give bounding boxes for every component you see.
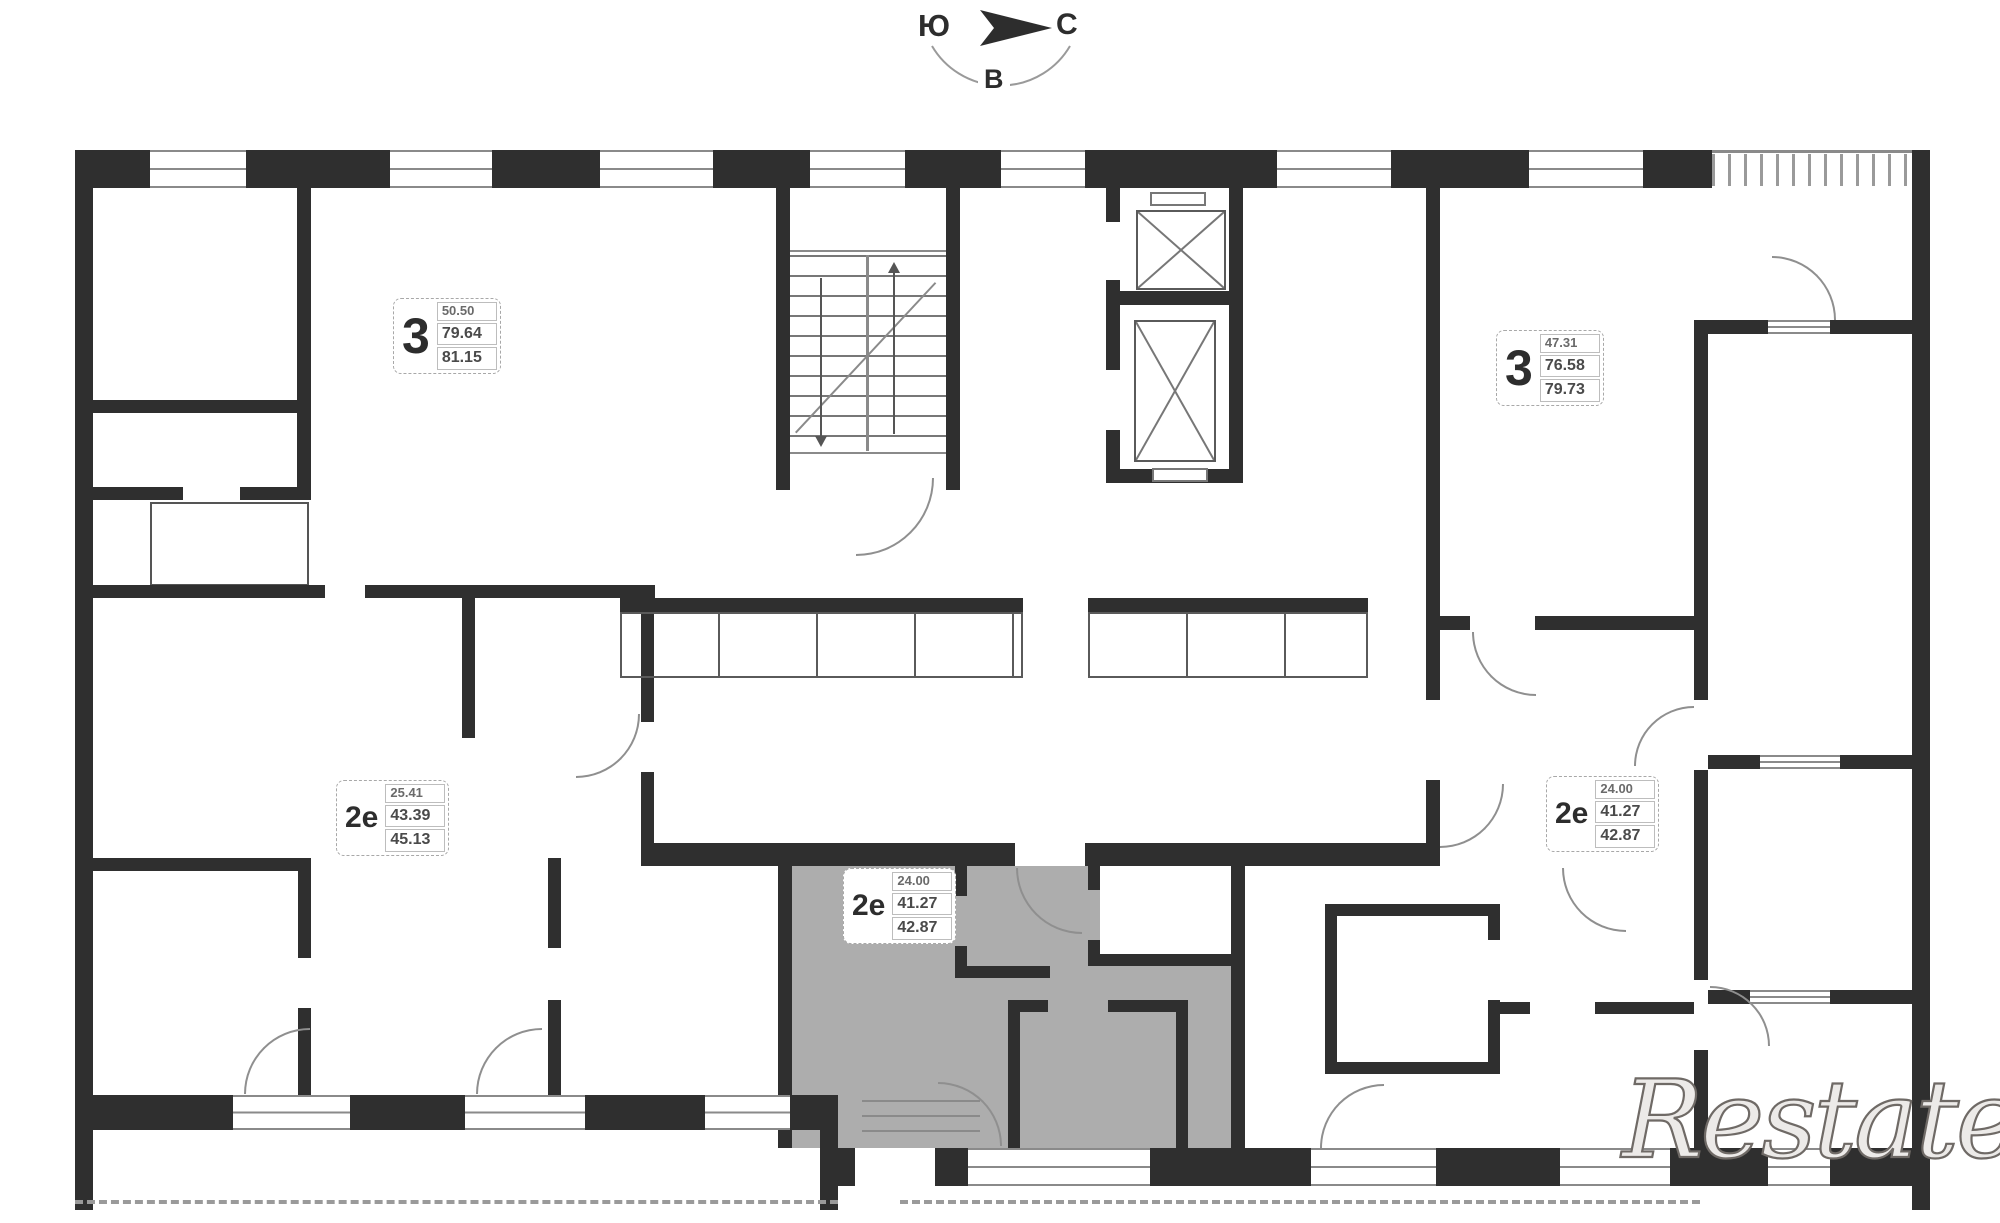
wall: [548, 1000, 561, 1095]
window: [1768, 320, 1830, 334]
stair-landing-line: [790, 250, 946, 252]
wall: [1912, 150, 1930, 1210]
compass-north-label: С: [1056, 8, 1078, 42]
wall: [1106, 188, 1120, 222]
wall: [240, 487, 311, 500]
wall: [955, 966, 1050, 978]
window: [1529, 150, 1643, 188]
elevator-shaft: [1136, 210, 1226, 290]
wall: [620, 598, 1023, 612]
area-living: 50.50: [437, 302, 497, 321]
wall: [75, 150, 93, 1210]
wall: [93, 487, 183, 500]
corridor-closets: [1088, 612, 1368, 678]
apartment-type: 3: [397, 302, 435, 370]
wall: [585, 1095, 705, 1130]
door-arc: [476, 1028, 542, 1094]
wall: [1085, 150, 1277, 188]
door-arc: [1472, 632, 1536, 696]
door-arc: [856, 478, 934, 556]
area-total: 42.87: [892, 917, 952, 939]
wall: [1426, 780, 1440, 866]
wall: [1830, 320, 1912, 334]
closet-box: [150, 502, 309, 586]
stair-up-arrow: [893, 272, 895, 434]
wall: [1436, 1148, 1560, 1186]
elevator-door: [1150, 192, 1206, 206]
wall: [1176, 1000, 1188, 1148]
wall: [93, 1095, 233, 1130]
compass-south-label: Ю: [918, 8, 950, 44]
window: [150, 150, 246, 188]
wall: [1150, 1148, 1311, 1186]
area-main: 41.27: [892, 893, 952, 915]
area-total: 79.73: [1540, 379, 1600, 401]
wall: [492, 150, 600, 188]
area-main: 41.27: [1595, 801, 1655, 823]
wall: [1440, 616, 1470, 630]
window: [1001, 150, 1085, 188]
wall: [1694, 770, 1708, 980]
wall: [1245, 843, 1426, 866]
wall: [93, 400, 311, 413]
area-total: 45.13: [385, 829, 445, 851]
apartment-type: 3: [1500, 334, 1538, 402]
floor-plan: Ю С В: [0, 0, 2000, 1223]
door-arc: [576, 714, 640, 778]
door-arc: [1772, 256, 1836, 320]
wall: [1085, 843, 1231, 866]
wall: [1708, 320, 1768, 334]
window: [1750, 990, 1830, 1004]
wall: [93, 585, 325, 598]
window: [1311, 1148, 1436, 1186]
apartment-type: 2е: [847, 872, 890, 940]
elevator-shaft: [1134, 320, 1216, 462]
balcony-glazing: [1712, 154, 1912, 186]
wall: [820, 1095, 838, 1210]
apartment-label-2e-center-highlighted[interactable]: 2е 24.00 41.27 42.87: [843, 868, 956, 944]
restate-watermark: Restate: [1622, 1058, 2000, 1218]
balcony-edge-line: [1712, 150, 1912, 153]
area-living: 24.00: [892, 872, 952, 891]
wall: [1325, 1062, 1500, 1074]
apartment-label-2e-left[interactable]: 2е 25.41 43.39 45.13: [336, 780, 449, 856]
wall: [1500, 1002, 1530, 1014]
bathroom-area: [1100, 866, 1231, 954]
wall: [955, 866, 967, 896]
wall: [350, 1095, 465, 1130]
stair-landing-line: [790, 452, 946, 454]
wall: [1231, 843, 1245, 1186]
door-arc: [1562, 868, 1626, 932]
area-living: 24.00: [1595, 780, 1655, 799]
area-total: 81.15: [437, 347, 497, 369]
wall: [1088, 866, 1100, 890]
wall: [838, 1148, 855, 1186]
wall: [641, 772, 654, 866]
wall: [1840, 755, 1912, 769]
wall: [935, 1148, 968, 1186]
window: [968, 1148, 1150, 1186]
area-main: 79.64: [437, 323, 497, 345]
window: [465, 1095, 585, 1130]
wall: [1643, 150, 1712, 188]
arrow-head-icon: [815, 436, 827, 447]
wall: [1008, 1000, 1020, 1148]
corridor-closets: [620, 612, 1023, 678]
wall: [298, 858, 311, 958]
door-arc: [1634, 706, 1694, 766]
area-living: 25.41: [385, 784, 445, 803]
door-arc: [244, 1028, 310, 1094]
wall: [1229, 188, 1243, 483]
window: [1760, 755, 1840, 769]
area-total: 42.87: [1595, 825, 1655, 847]
area-main: 76.58: [1540, 355, 1600, 377]
window: [600, 150, 713, 188]
wall: [1830, 990, 1912, 1004]
balcony-dashed-line: [75, 1200, 838, 1208]
window: [810, 150, 905, 188]
apartment-type: 2е: [340, 784, 383, 852]
wall: [548, 858, 561, 948]
apartment-type: 2е: [1550, 780, 1593, 848]
wall: [1325, 904, 1500, 916]
wall: [946, 188, 960, 490]
wall: [776, 188, 790, 490]
apartment-label-3-left[interactable]: 3 50.50 79.64 81.15: [393, 298, 501, 374]
wall: [1488, 904, 1500, 940]
window: [705, 1095, 790, 1130]
arrow-head-icon: [888, 262, 900, 273]
wall: [1106, 291, 1243, 305]
wall: [297, 188, 311, 488]
door-arc: [1320, 1084, 1384, 1148]
window: [390, 150, 492, 188]
balcony-dashed-line: [900, 1200, 1700, 1208]
apartment-label-2e-right[interactable]: 2е 24.00 41.27 42.87: [1546, 776, 1659, 852]
wall: [1694, 320, 1708, 700]
wall: [246, 150, 390, 188]
wall: [1391, 150, 1529, 188]
wall: [93, 858, 311, 871]
wall: [1708, 755, 1760, 769]
area-main: 43.39: [385, 805, 445, 827]
wall: [1595, 1002, 1694, 1014]
compass-east-label: В: [978, 64, 1010, 95]
wall: [654, 843, 1015, 866]
wall: [905, 150, 1001, 188]
wall: [713, 150, 810, 188]
window: [233, 1095, 350, 1130]
wall: [1426, 188, 1440, 700]
stair-down-arrow: [820, 278, 822, 436]
area-living: 47.31: [1540, 334, 1600, 353]
wall: [365, 585, 655, 598]
apartment-label-3-right[interactable]: 3 47.31 76.58 79.73: [1496, 330, 1604, 406]
wall: [462, 598, 475, 738]
wall: [1088, 954, 1231, 966]
elevator-door: [1152, 468, 1208, 482]
wall: [1325, 904, 1337, 1074]
window: [1277, 150, 1391, 188]
wall: [1088, 598, 1368, 612]
wall: [1535, 616, 1694, 630]
compass: Ю С В: [890, 0, 1120, 108]
door-arc: [1440, 784, 1504, 848]
